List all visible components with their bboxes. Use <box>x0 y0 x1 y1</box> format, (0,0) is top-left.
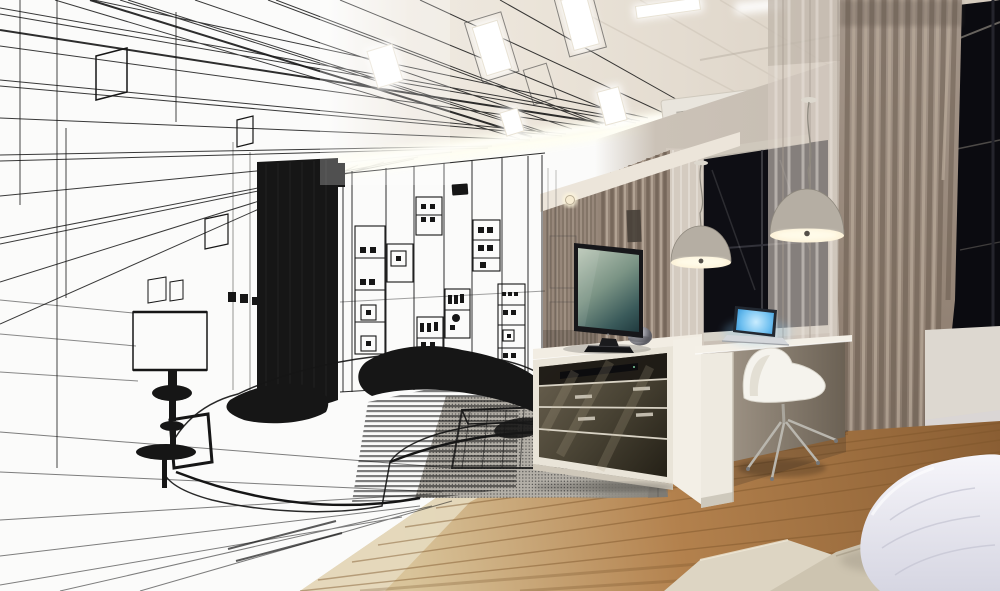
laptop-screen <box>736 309 774 334</box>
cabinet-end-panel <box>673 336 702 505</box>
blend-wash <box>320 0 450 185</box>
speaker-box <box>452 183 469 195</box>
scene-canvas <box>0 0 1000 591</box>
interior-visualization <box>0 0 1000 591</box>
desk-side-panel <box>701 352 733 508</box>
